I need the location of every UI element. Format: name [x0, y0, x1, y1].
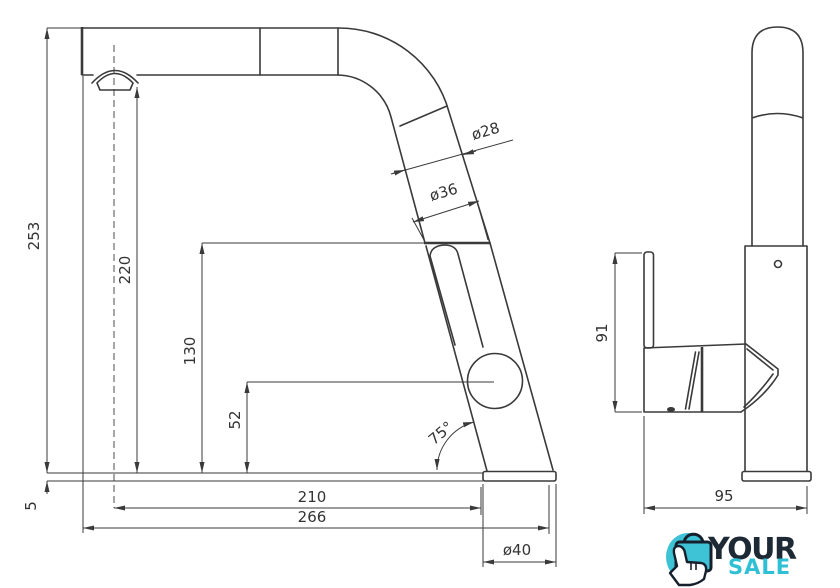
dim-40-label: ø40 — [503, 541, 531, 559]
drawing-svg: 253 220 130 52 5 210 266 ø40 ø28 ø36 75°… — [0, 0, 840, 588]
base-flange-front — [483, 472, 556, 482]
side-handle-body — [644, 344, 746, 412]
logo-text-sale: SALE — [728, 555, 791, 579]
dim-36-label: ø36 — [428, 180, 460, 205]
dim-28-label: ø28 — [470, 119, 502, 144]
spray-head-slot — [430, 245, 483, 347]
side-handle-blade — [644, 252, 654, 348]
dim-253-label: 253 — [25, 222, 43, 251]
side-spray-tube — [752, 27, 803, 246]
handle-knob — [92, 71, 138, 91]
dim-210-label: 210 — [298, 488, 327, 506]
faucet-technical-drawing: 253 220 130 52 5 210 266 ø40 ø28 ø36 75°… — [0, 0, 840, 588]
side-handle-dot — [667, 407, 675, 412]
dim-91-label: 91 — [593, 323, 611, 342]
dim-266-label: 266 — [298, 508, 327, 526]
front-view: 253 220 130 52 5 210 266 ø40 ø28 ø36 75° — [22, 27, 556, 567]
set-screw — [775, 261, 782, 268]
dim-28-arrow-right — [463, 151, 476, 155]
side-joint-wedge — [741, 344, 778, 412]
extension-lines-front — [47, 28, 556, 567]
dim-220-label: 220 — [116, 256, 134, 285]
spout-outline — [82, 28, 490, 243]
logo: YOUR SALE — [666, 532, 797, 585]
side-view: 91 95 — [593, 27, 811, 514]
dim-36-line — [413, 201, 479, 222]
dim-130-label: 130 — [181, 337, 199, 366]
base-flange-side — [742, 472, 811, 482]
dim-28-line — [391, 140, 513, 174]
dim-52-label: 52 — [226, 410, 244, 429]
dim-28-arrow-left — [392, 170, 405, 174]
spray-head-circle — [468, 354, 523, 409]
dim-5-label: 5 — [22, 501, 40, 511]
dim-75-label: 75° — [425, 418, 457, 449]
dim-95-label: 95 — [714, 487, 733, 505]
side-body — [745, 246, 807, 471]
